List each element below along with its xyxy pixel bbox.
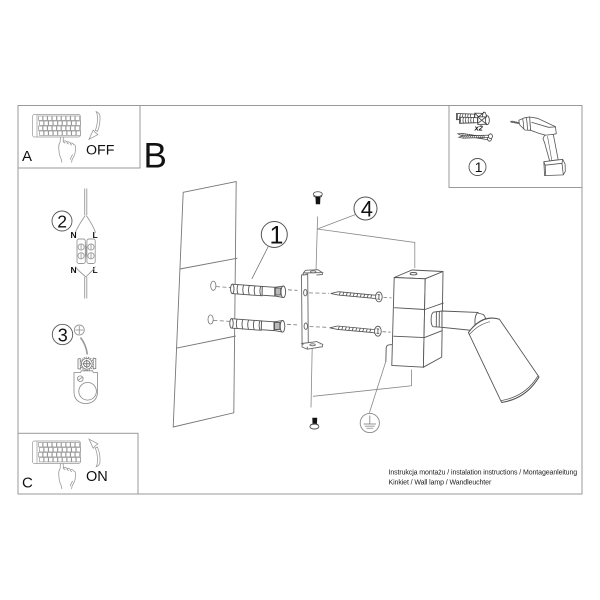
svg-text:L: L <box>93 230 98 240</box>
svg-text:OFF: OFF <box>86 143 115 159</box>
svg-text:1: 1 <box>475 159 483 175</box>
svg-text:C: C <box>22 475 33 492</box>
svg-text:Kinkiet / Wall lamp / Wandleuc: Kinkiet / Wall lamp / Wandleuchter <box>389 480 492 487</box>
svg-text:4: 4 <box>361 197 373 222</box>
svg-text:2: 2 <box>57 211 67 231</box>
svg-text:3: 3 <box>58 325 68 345</box>
svg-text:B: B <box>144 137 167 176</box>
svg-text:N: N <box>71 230 77 240</box>
svg-text:ON: ON <box>86 469 108 485</box>
svg-text:Instrukcja montażu / instalati: Instrukcja montażu / instalation instruc… <box>389 470 578 477</box>
svg-text:A: A <box>22 148 32 165</box>
svg-text:x2: x2 <box>474 124 484 133</box>
svg-text:1: 1 <box>270 222 284 250</box>
